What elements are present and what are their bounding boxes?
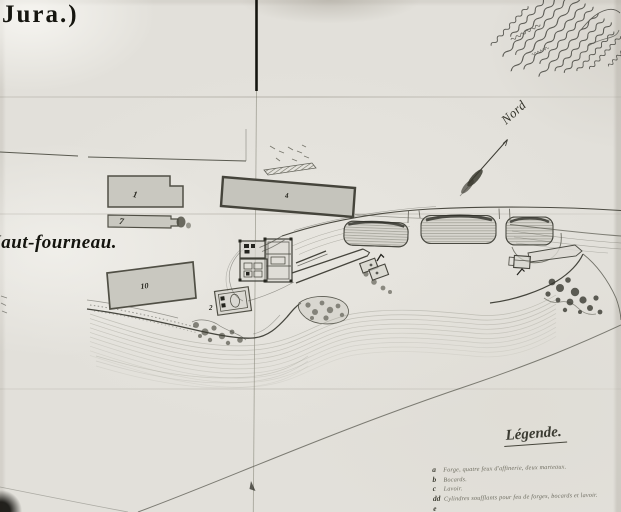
- site-title-haut-fourneau: Haut-fourneau.: [0, 232, 117, 254]
- survey-mark: [250, 481, 256, 491]
- legend-entries: aForge, quatre feux d'affinerie, deux ma…: [432, 458, 621, 512]
- tree-blob: [177, 217, 186, 228]
- building-4-number: 4: [285, 192, 289, 200]
- dam-island-1: [344, 221, 409, 247]
- left-bank: [1, 271, 392, 345]
- tree-blob: [186, 223, 191, 229]
- building-7-number: 7: [119, 216, 125, 227]
- north-arrow: [459, 140, 507, 197]
- buildings: [107, 176, 355, 315]
- region-title: Jura.): [2, 1, 79, 29]
- letter-mark: [377, 255, 384, 262]
- riverside-building-right: [509, 255, 531, 268]
- hatched-ramp: [264, 163, 316, 175]
- outlet-buildings: [360, 255, 389, 283]
- letter-mark: [517, 269, 525, 275]
- legend-letter: e: [433, 503, 444, 512]
- building-10-number: 10: [140, 281, 149, 291]
- terrain-ticks: [270, 145, 309, 161]
- handwritten-annotation: [487, 0, 621, 119]
- building-10: [107, 262, 196, 309]
- vegetation-patch: [545, 277, 602, 314]
- spit: [528, 245, 582, 262]
- building-1: [108, 176, 183, 207]
- building-2-number: 2: [209, 304, 213, 312]
- map-sheet: Jura.) Haut-fourneau. Nord 1 7 4 10 2 Lé…: [0, 0, 621, 512]
- rocks-center: [298, 296, 348, 323]
- arrow-feather: [459, 178, 476, 196]
- dam-island-2: [421, 216, 496, 244]
